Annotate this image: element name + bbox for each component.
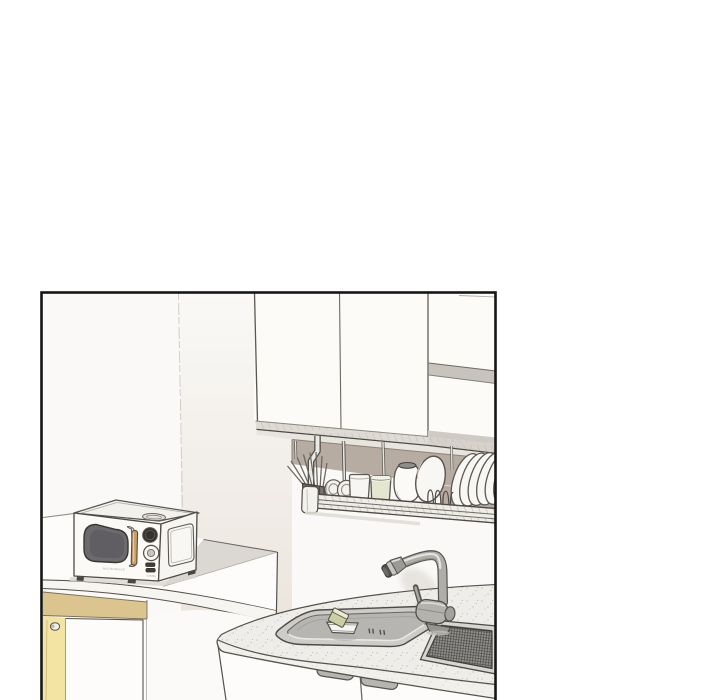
svg-text:SAMSU: SAMSU [146,574,156,579]
